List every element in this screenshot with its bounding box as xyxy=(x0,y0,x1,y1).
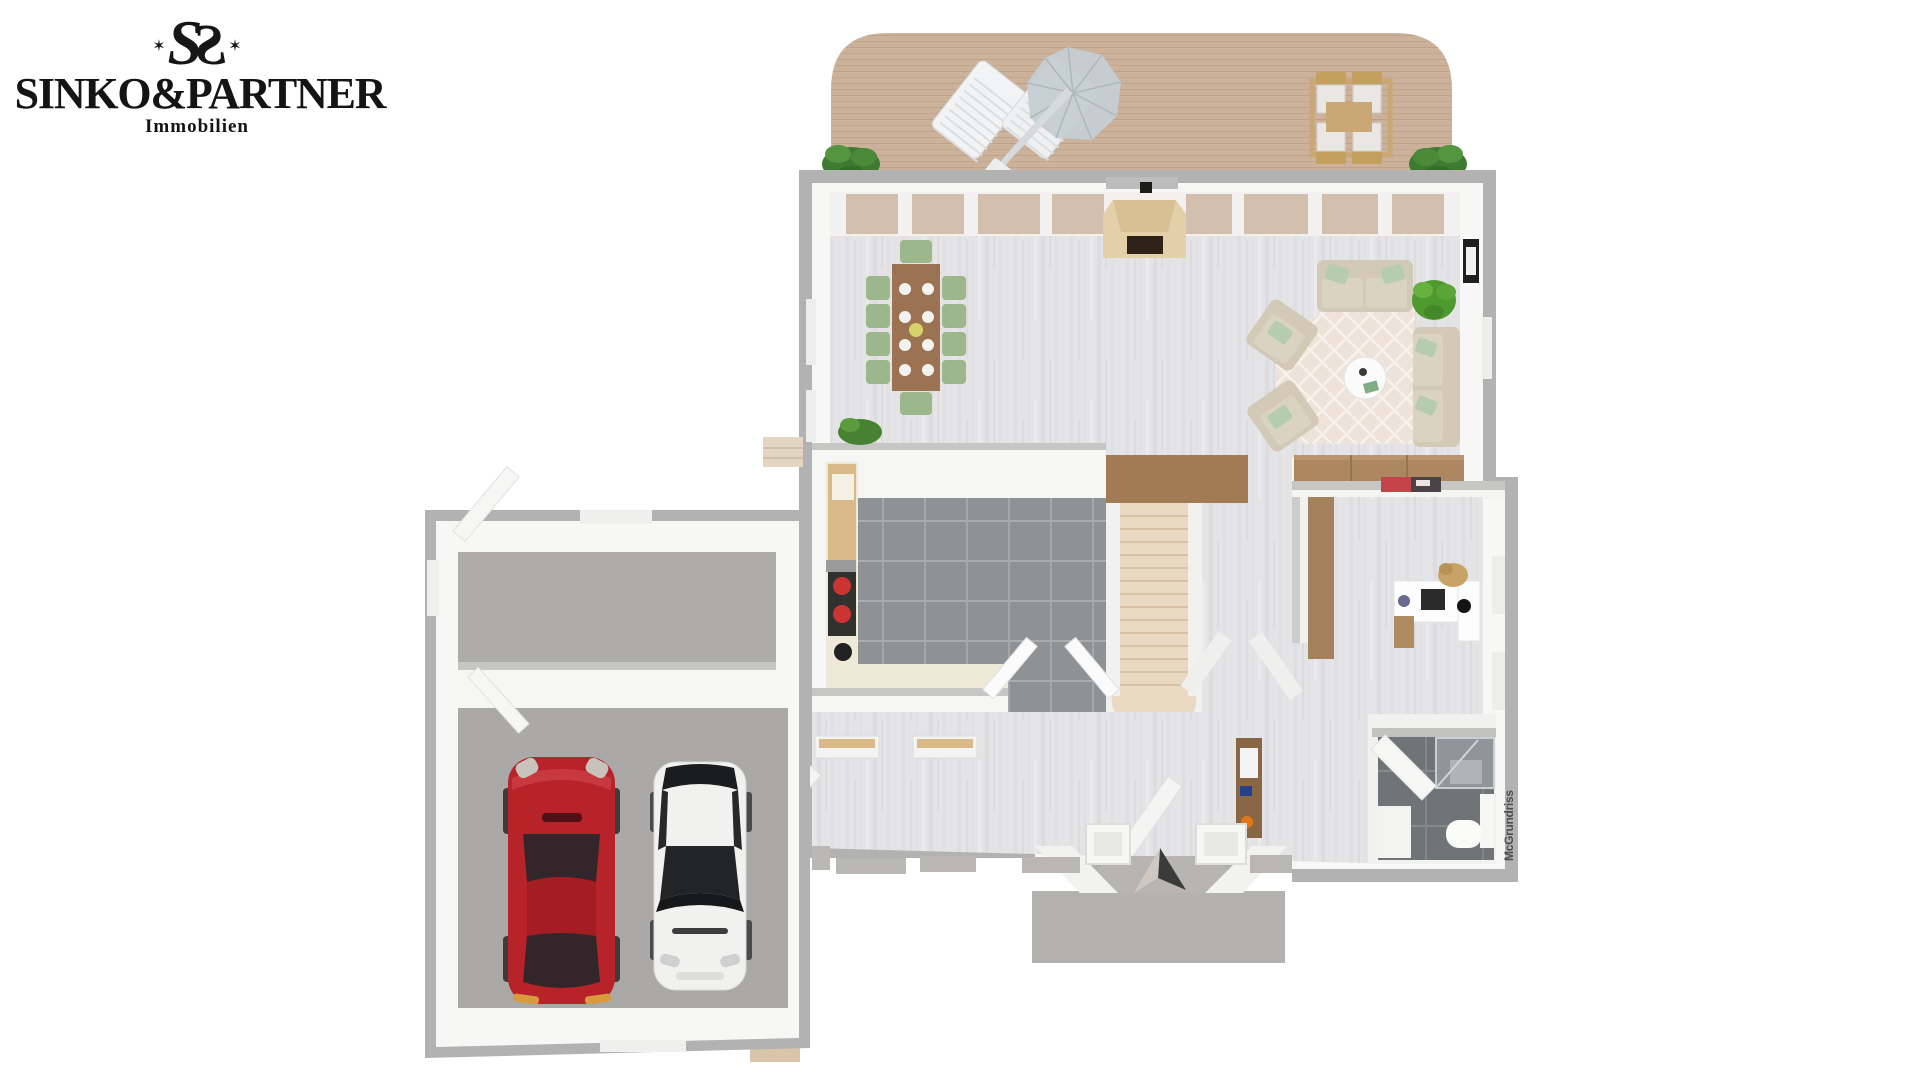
svg-text:Immobilien: Immobilien xyxy=(145,116,249,137)
svg-text:✶: ✶ xyxy=(228,38,241,55)
svg-text:SINKO&PARTNER: SINKO&PARTNER xyxy=(15,69,388,118)
svg-text:McGrundriss: McGrundriss xyxy=(1502,790,1516,861)
svg-text:S: S xyxy=(194,12,226,77)
svg-text:✶: ✶ xyxy=(152,38,165,55)
